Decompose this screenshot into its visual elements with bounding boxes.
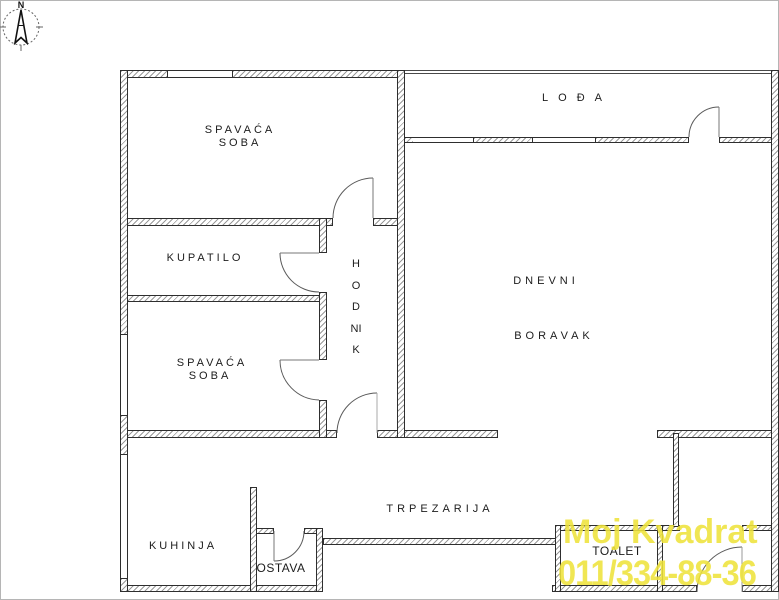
door-bathroom: [280, 253, 319, 292]
room-label-bathroom: KUPATILO: [167, 252, 244, 264]
door-bedroom-top: [333, 178, 373, 218]
compass-rose-icon: [0, 0, 50, 56]
wall: [595, 137, 689, 143]
wall: [319, 292, 327, 360]
wall: [319, 218, 327, 253]
wall: [120, 585, 323, 592]
window: [413, 137, 473, 143]
wall: [250, 487, 257, 592]
wall: [473, 137, 533, 143]
door-hallway: [337, 393, 377, 433]
watermark-phone: 011/334-88-36: [558, 554, 756, 594]
room-label-bedroom-top-line2: SOBA: [219, 137, 262, 149]
room-label-hallway: HODNIK: [350, 254, 363, 362]
room-label-pantry: OSTAVA: [256, 561, 305, 575]
wall: [719, 137, 773, 143]
wall: [232, 70, 404, 78]
wall: [120, 578, 128, 592]
wall: [120, 218, 333, 226]
door-pantry: [274, 531, 304, 561]
wall: [397, 70, 405, 438]
room-label-kitchen: KUHINJA: [149, 540, 217, 552]
wall: [771, 70, 779, 592]
room-label-bedroom-left-line1: SPAVAĆA: [177, 357, 248, 369]
room-label-bedroom-top-line1: SPAVAĆA: [205, 124, 276, 136]
watermark-brand: Moj Kvadrat: [563, 513, 758, 552]
wall: [120, 415, 128, 455]
window: [168, 70, 232, 78]
window: [120, 335, 128, 415]
window: [120, 455, 128, 578]
room-label-living-room-line2: BORAVAK: [514, 330, 594, 342]
room-label-loggia: LOĐA: [542, 92, 612, 104]
floor-plan: N: [0, 0, 779, 600]
loggia-railing: [403, 70, 777, 74]
room-label-dining-room: TRPEZARIJA: [386, 503, 493, 515]
compass-north-label: N: [18, 0, 25, 10]
wall: [255, 528, 274, 534]
room-label-bedroom-left-line2: SOBA: [189, 370, 232, 382]
door-loggia: [689, 107, 719, 137]
door-bedroom-left: [280, 360, 319, 400]
wall: [120, 430, 337, 438]
wall: [120, 70, 128, 335]
wall: [120, 295, 327, 302]
wall: [377, 430, 498, 438]
wall: [323, 538, 560, 545]
wall: [316, 528, 323, 592]
window: [533, 137, 595, 143]
room-label-living-room-line1: DNEVNI: [513, 275, 579, 287]
wall: [319, 400, 327, 438]
